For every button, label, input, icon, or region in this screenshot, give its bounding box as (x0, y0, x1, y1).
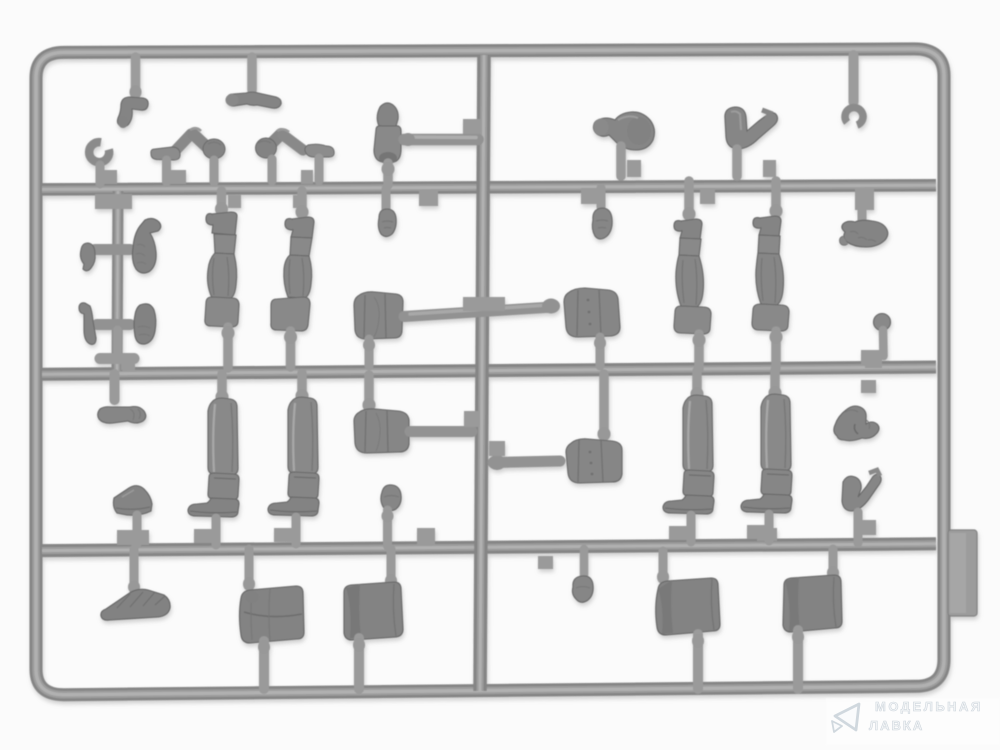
svg-text:МОДЕЛЬНАЯ: МОДЕЛЬНАЯ (875, 699, 983, 714)
svg-text:ЛАВКА: ЛАВКА (869, 718, 924, 733)
